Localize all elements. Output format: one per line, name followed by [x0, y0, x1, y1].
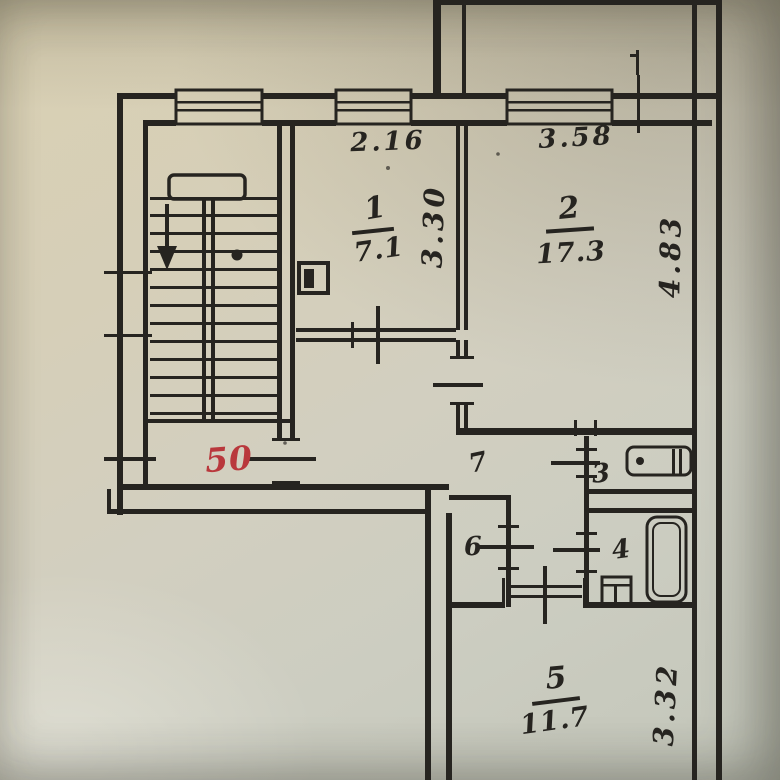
room5-number: 5 [544, 663, 567, 695]
room1-area: 7.1 [352, 233, 405, 267]
closet-number: 6 [463, 534, 482, 561]
room1-depth-dimension: 3.30 [419, 183, 450, 268]
fraction-line [546, 226, 594, 233]
room5-depth-dimension: 3.32 [650, 661, 682, 747]
room2-area: 17.3 [535, 238, 606, 269]
plan-labels: 2.16 3.30 1 7.1 3.58 4.83 2 17.3 50 7 3 … [0, 0, 780, 780]
hall-number: 7 [466, 448, 489, 477]
bath-number: 4 [610, 536, 632, 564]
apartment-number: 50 [204, 441, 254, 477]
room2-depth-dimension: 4.83 [656, 214, 685, 299]
room5-area: 11.7 [519, 703, 592, 739]
floor-plan-photo: 2.16 3.30 1 7.1 3.58 4.83 2 17.3 50 7 3 … [0, 0, 780, 780]
room2-width-dimension: 3.58 [538, 123, 615, 153]
room1-width-dimension: 2.16 [350, 128, 426, 157]
room2-number: 2 [557, 193, 581, 225]
room1-number: 1 [362, 192, 388, 225]
toilet-number: 3 [591, 460, 611, 487]
